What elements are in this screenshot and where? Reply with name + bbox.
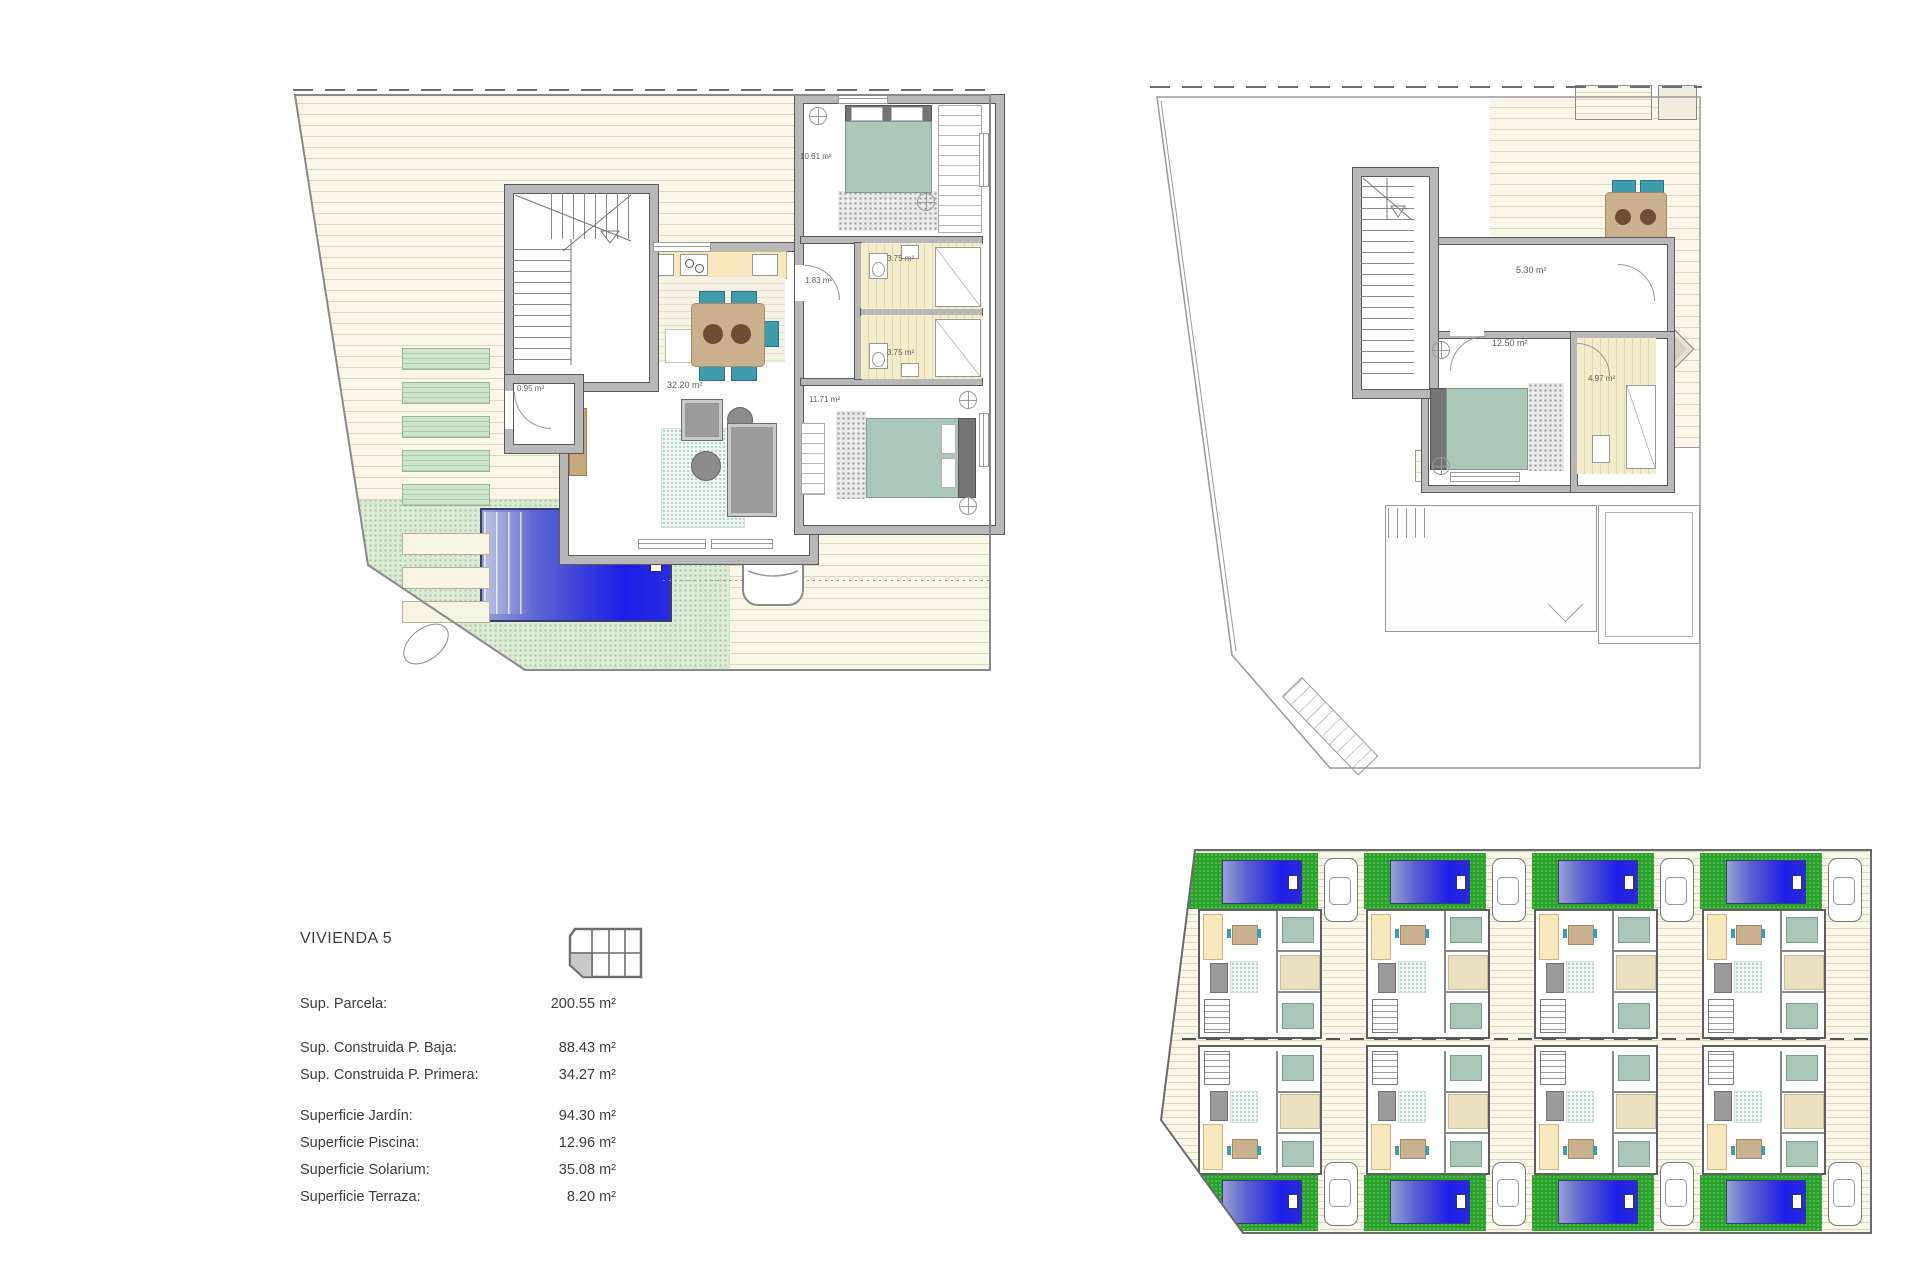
site-outline: [1158, 845, 1876, 1240]
row-value: 35.08 m²: [496, 1162, 616, 1178]
legend-row: Superficie Terraza: 8.20 m²: [300, 1189, 616, 1205]
ground-floor-plan: 32.20 m² TV 0.95 m²: [293, 93, 993, 673]
row-value: 94.30 m²: [496, 1108, 616, 1124]
legend-row: Sup. Construida P. Primera: 34.27 m²: [300, 1067, 616, 1083]
row-value: 12.96 m²: [496, 1135, 616, 1151]
first-floor-plan: 4.97 m² 12.50 m² 5.30 m²: [1150, 85, 1710, 780]
floor-plan-sheet: 32.20 m² TV 0.95 m²: [0, 0, 1920, 1280]
parcel-outline: [293, 93, 993, 673]
row-value: 200.55 m²: [496, 996, 616, 1012]
site-plan: [1158, 845, 1876, 1240]
boundary-dashed: [1150, 86, 1702, 88]
legend-row: Sup. Parcela: 200.55 m²: [300, 996, 616, 1012]
legend-row: Superficie Piscina: 12.96 m²: [300, 1135, 616, 1151]
legend-row: Sup. Construida P. Baja: 88.43 m²: [300, 1040, 616, 1056]
row-label: Sup. Construida P. Baja:: [300, 1040, 457, 1056]
row-label: Sup. Parcela:: [300, 996, 387, 1012]
boundary-dashed: [293, 89, 993, 91]
dwelling-title: VIVIENDA 5: [300, 930, 392, 948]
key-plan-icon: [565, 924, 645, 984]
row-value: 8.20 m²: [496, 1189, 616, 1205]
row-label: Superficie Solarium:: [300, 1162, 430, 1178]
row-label: Superficie Jardín:: [300, 1108, 413, 1124]
parcel-outline: [1150, 85, 1710, 780]
row-label: Sup. Construida P. Primera:: [300, 1067, 479, 1083]
row-label: Superficie Terraza:: [300, 1189, 421, 1205]
row-label: Superficie Piscina:: [300, 1135, 419, 1151]
legend-row: Superficie Jardín: 94.30 m²: [300, 1108, 616, 1124]
row-value: 88.43 m²: [496, 1040, 616, 1056]
legend-row: Superficie Solarium: 35.08 m²: [300, 1162, 616, 1178]
row-value: 34.27 m²: [496, 1067, 616, 1083]
